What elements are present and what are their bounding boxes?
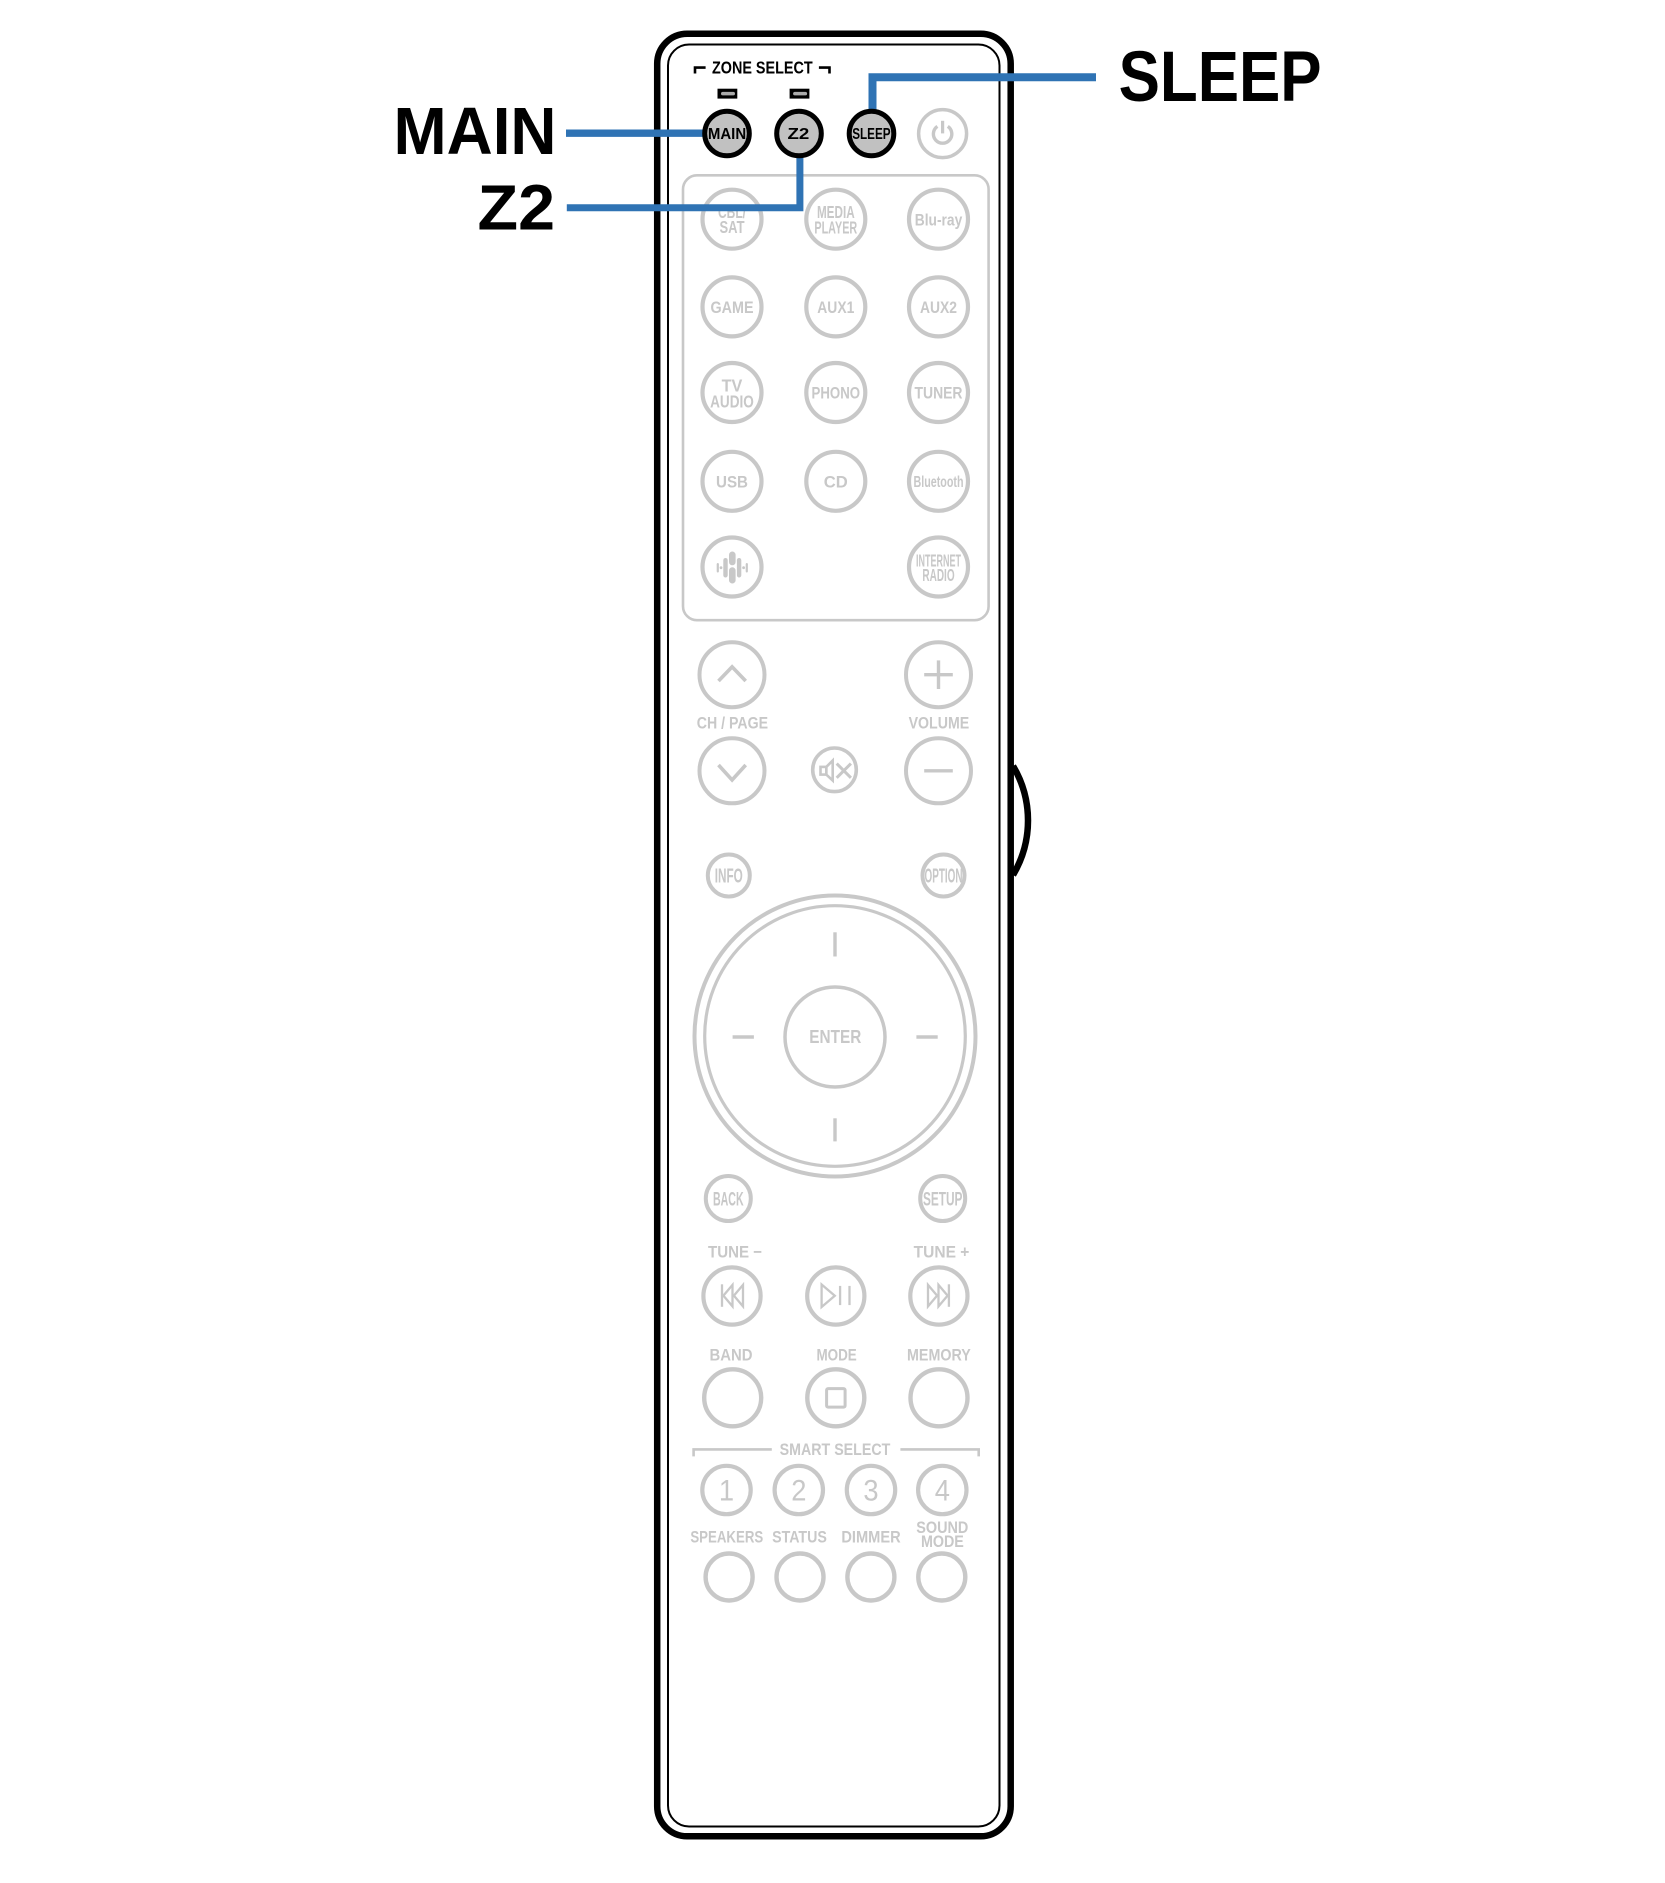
svg-text:VOLUME: VOLUME — [909, 714, 970, 733]
svg-text:3: 3 — [863, 1474, 878, 1507]
svg-text:Z2: Z2 — [788, 126, 810, 143]
svg-text:ZONE SELECT: ZONE SELECT — [712, 57, 813, 77]
svg-text:2: 2 — [791, 1474, 806, 1507]
svg-text:ENTER: ENTER — [809, 1027, 861, 1047]
svg-text:1: 1 — [719, 1474, 734, 1507]
svg-text:RADIO: RADIO — [922, 565, 954, 585]
svg-text:BAND: BAND — [710, 1346, 753, 1365]
svg-text:SLEEP: SLEEP — [852, 126, 890, 143]
svg-text:CD: CD — [824, 473, 848, 492]
svg-text:CH / PAGE: CH / PAGE — [697, 714, 768, 733]
svg-text:PLAYER: PLAYER — [814, 218, 857, 238]
svg-text:SMART SELECT: SMART SELECT — [780, 1440, 891, 1459]
svg-text:AUX2: AUX2 — [920, 298, 957, 317]
svg-text:MAIN: MAIN — [394, 94, 557, 169]
svg-text:Blu-ray: Blu-ray — [915, 210, 963, 229]
svg-text:GAME: GAME — [711, 298, 754, 317]
svg-text:MAIN: MAIN — [708, 126, 746, 143]
svg-text:SETUP: SETUP — [923, 1188, 963, 1210]
svg-text:BACK: BACK — [713, 1188, 744, 1210]
svg-text:INFO: INFO — [715, 865, 743, 887]
svg-text:PHONO: PHONO — [812, 384, 861, 403]
svg-text:STATUS: STATUS — [772, 1528, 827, 1547]
svg-text:SLEEP: SLEEP — [1119, 38, 1322, 117]
svg-text:TUNER: TUNER — [915, 384, 963, 403]
svg-text:TUNE +: TUNE + — [914, 1243, 970, 1262]
svg-text:Bluetooth: Bluetooth — [914, 474, 964, 491]
svg-text:AUDIO: AUDIO — [710, 392, 754, 412]
svg-text:MODE: MODE — [921, 1532, 964, 1551]
svg-text:MODE: MODE — [816, 1346, 856, 1365]
svg-text:MEMORY: MEMORY — [907, 1346, 971, 1365]
svg-text:USB: USB — [716, 473, 748, 492]
svg-text:AUX1: AUX1 — [817, 298, 854, 317]
svg-text:4: 4 — [935, 1474, 950, 1507]
svg-text:OPTION: OPTION — [925, 865, 963, 887]
svg-text:SAT: SAT — [720, 217, 745, 237]
svg-text:DIMMER: DIMMER — [841, 1528, 900, 1547]
svg-text:Z2: Z2 — [478, 172, 556, 244]
svg-text:TUNE −: TUNE − — [708, 1243, 762, 1262]
svg-text:SPEAKERS: SPEAKERS — [690, 1528, 763, 1547]
